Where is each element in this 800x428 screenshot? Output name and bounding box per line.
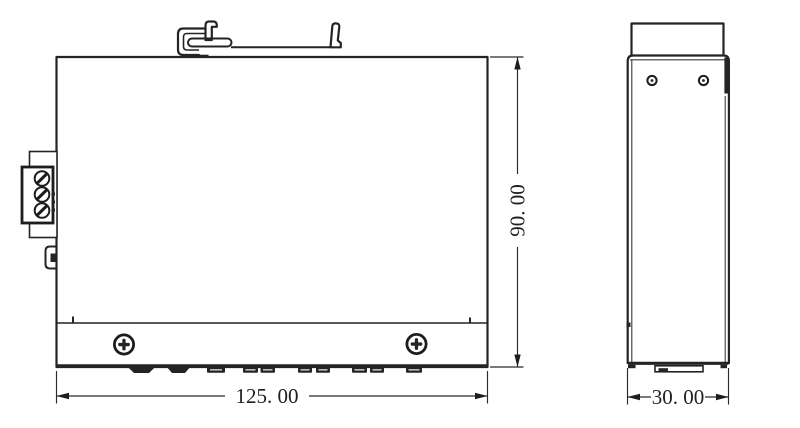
- side-foot-corner-left: [628, 365, 636, 368]
- bottom-connector-tabs: [128, 367, 422, 373]
- arrowhead-down: [514, 355, 520, 368]
- bottom-tab-slot: [355, 369, 365, 371]
- terminal-screw-1: [35, 171, 50, 186]
- side-rail-slot-bar: [724, 58, 729, 94]
- screw-cross-v: [415, 338, 418, 350]
- side-view: [627, 24, 729, 372]
- terminal-screw-3: [35, 203, 50, 218]
- bottom-tab-slot: [373, 369, 382, 371]
- hole-center: [651, 79, 654, 82]
- terminal-mark: [52, 201, 56, 204]
- terminal-screw-2: [35, 187, 50, 202]
- technical-drawing-canvas: 125. 00 90. 00 30. 00: [0, 0, 800, 428]
- side-body-outline: [628, 56, 729, 365]
- side-top-cap: [632, 24, 724, 58]
- side-hole-right: [699, 76, 708, 85]
- dimension-front-width: 125. 00: [57, 371, 488, 408]
- dimension-width-label: 125. 00: [236, 384, 299, 408]
- arrowhead-right: [716, 394, 729, 401]
- side-edge-tick: [627, 323, 631, 328]
- din-clip-hook-inner: [184, 34, 206, 51]
- side-foot-corner-right: [721, 365, 728, 368]
- terminal-block: [22, 152, 57, 238]
- bottom-tab-slot: [409, 369, 420, 371]
- din-clip-stem: [206, 22, 217, 41]
- bottom-tab-slot: [301, 369, 310, 371]
- arrowhead-right: [475, 393, 488, 400]
- din-rail-clip: [178, 22, 341, 58]
- front-enclosure-outline: [57, 57, 488, 367]
- bottom-tab-slot: [210, 369, 222, 371]
- bottom-tab-slot: [246, 369, 256, 371]
- dimension-height-label: 90. 00: [506, 184, 530, 237]
- dimension-depth-label: 30. 00: [652, 385, 705, 409]
- hole-center: [702, 79, 705, 82]
- side-lug-insert: [51, 254, 58, 263]
- terminal-mark: [52, 193, 56, 196]
- bottom-tab: [167, 367, 190, 373]
- bottom-tab: [128, 367, 155, 373]
- arrowhead-up: [514, 57, 520, 70]
- dimension-front-height: 90. 00: [490, 57, 530, 367]
- side-hole-left: [647, 76, 656, 85]
- side-lug: [46, 247, 58, 269]
- dimension-side-depth: 30. 00: [628, 368, 729, 409]
- terminal-mark: [52, 209, 56, 212]
- screw-cross-v: [122, 339, 125, 351]
- arrowhead-left: [57, 393, 70, 400]
- technical-drawing: 125. 00 90. 00 30. 00: [0, 0, 800, 428]
- arrowhead-left: [628, 394, 641, 401]
- side-bottom-tab-notch: [659, 368, 669, 372]
- bottom-tab-slot: [319, 369, 328, 371]
- phillips-screw-right: [407, 334, 426, 353]
- front-view: [22, 22, 488, 374]
- bottom-tab-slot: [263, 369, 273, 371]
- phillips-screw-left: [114, 335, 133, 354]
- din-clip-right-tab: [331, 23, 341, 47]
